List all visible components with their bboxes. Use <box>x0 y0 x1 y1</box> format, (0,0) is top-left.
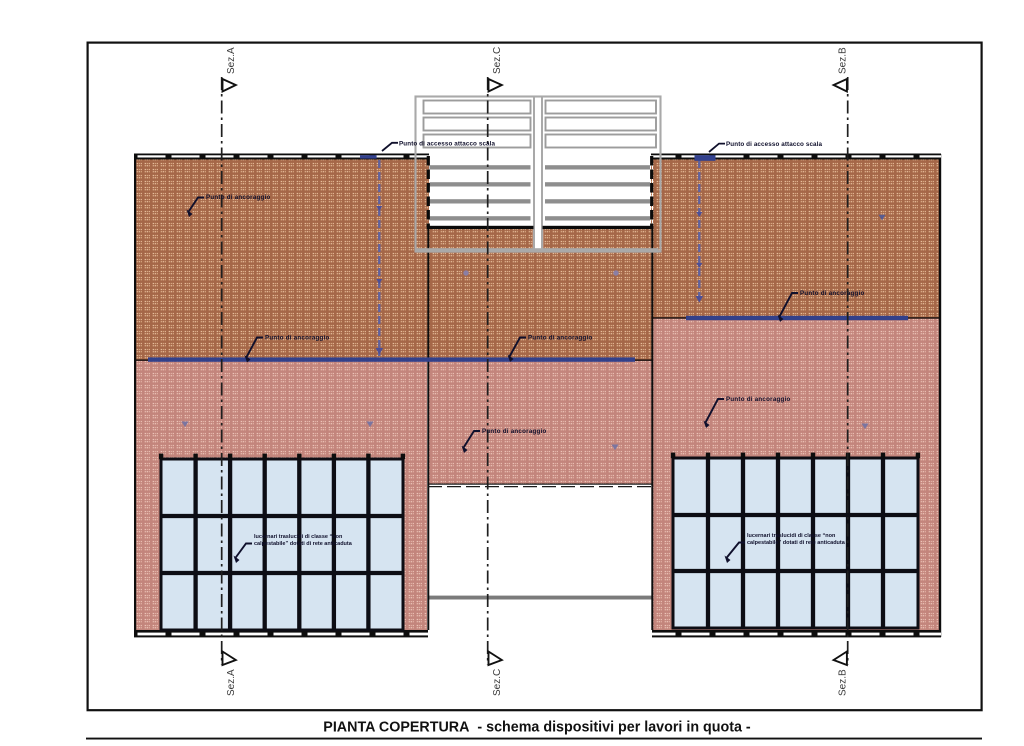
svg-text:lucernari traslucidi di classe: lucernari traslucidi di classe “non <box>254 534 343 540</box>
svg-text:PIANTA COPERTURA - schema dis: PIANTA COPERTURA - schema dispositivi pe… <box>323 720 751 736</box>
svg-text:Punto di accesso attacco scala: Punto di accesso attacco scala <box>399 141 495 148</box>
svg-text:calpestabile” dotati di rete a: calpestabile” dotati di rete anticaduta <box>747 540 846 546</box>
svg-text:Sez.B: Sez.B <box>838 47 849 74</box>
svg-text:Punto di ancoraggio: Punto di ancoraggio <box>265 335 330 342</box>
svg-text:Sez.A: Sez.A <box>226 47 237 74</box>
svg-text:Sez.A: Sez.A <box>226 669 237 696</box>
svg-text:Punto di accesso attacco scala: Punto di accesso attacco scala <box>726 141 822 148</box>
svg-text:calpestabile” dotati di rete a: calpestabile” dotati di rete anticaduta <box>254 541 353 547</box>
svg-text:Sez.B: Sez.B <box>838 669 849 696</box>
svg-text:Punto di ancoraggio: Punto di ancoraggio <box>800 290 865 297</box>
svg-text:Punto di ancoraggio: Punto di ancoraggio <box>726 396 791 403</box>
svg-text:Punto di ancoraggio: Punto di ancoraggio <box>482 428 547 435</box>
svg-text:Punto di ancoraggio: Punto di ancoraggio <box>206 194 271 201</box>
svg-text:lucernari traslucidi di classe: lucernari traslucidi di classe “non <box>747 533 836 539</box>
svg-text:Sez.C: Sez.C <box>492 47 503 74</box>
svg-text:Punto di ancoraggio: Punto di ancoraggio <box>528 335 593 342</box>
svg-text:Sez.C: Sez.C <box>492 669 503 696</box>
